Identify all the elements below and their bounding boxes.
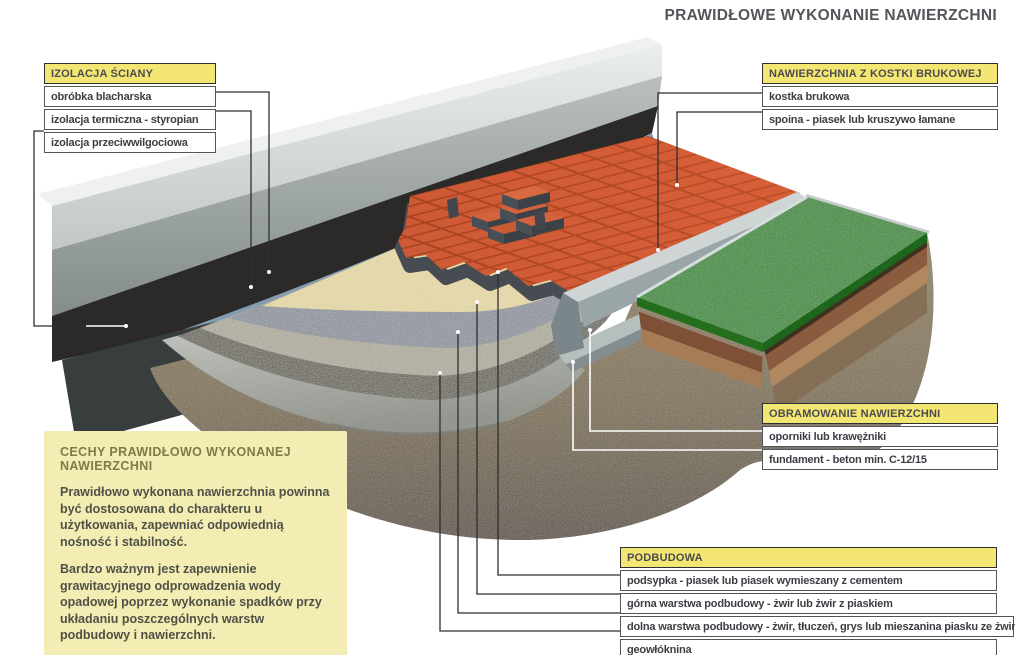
- info-box-header: CECHY PRAWIDŁOWO WYKONANEJ NAWIERZCHNI: [60, 445, 331, 473]
- callout-row: izolacja termiczna - styropian: [44, 109, 216, 130]
- callout-nawierzchnia: NAWIERZCHNIA Z KOSTKI BRUKOWEJ kostka br…: [762, 63, 998, 130]
- callout-header: OBRAMOWANIE NAWIERZCHNI: [762, 403, 998, 424]
- info-box-paragraph: Bardzo ważnym jest zapewnienie grawitacy…: [60, 561, 331, 644]
- callout-podbudowa: PODBUDOWA podsypka - piasek lub piasek w…: [620, 547, 997, 655]
- callout-row: fundament - beton min. C-12/15: [762, 449, 998, 470]
- callout-row: kostka brukowa: [762, 86, 998, 107]
- callout-row: izolacja przeciwwilgociowa: [44, 132, 216, 153]
- callout-header: PODBUDOWA: [620, 547, 997, 568]
- callout-header: IZOLACJA ŚCIANY: [44, 63, 216, 84]
- callout-row: spoina - piasek lub kruszywo łamane: [762, 109, 998, 130]
- callout-row: obróbka blacharska: [44, 86, 216, 107]
- info-box-paragraph: Prawidłowo wykonana nawierzchnia powinna…: [60, 484, 331, 550]
- callout-obramowanie: OBRAMOWANIE NAWIERZCHNI oporniki lub kra…: [762, 403, 998, 470]
- info-box: CECHY PRAWIDŁOWO WYKONANEJ NAWIERZCHNI P…: [44, 431, 347, 655]
- callout-izolacja-sciany: IZOLACJA ŚCIANY obróbka blacharska izola…: [44, 63, 216, 153]
- callout-row: geowłóknina: [620, 639, 997, 655]
- diagram-stage: PRAWIDŁOWE WYKONANIE NAWIERZCHNI IZOLACJ…: [0, 0, 1015, 655]
- page-title: PRAWIDŁOWE WYKONANIE NAWIERZCHNI: [664, 7, 997, 25]
- callout-row: podsypka - piasek lub piasek wymieszany …: [620, 570, 997, 591]
- callout-header: NAWIERZCHNIA Z KOSTKI BRUKOWEJ: [762, 63, 998, 84]
- callout-row: dolna warstwa podbudowy - żwir, tłuczeń,…: [620, 616, 1014, 637]
- callout-row: górna warstwa podbudowy - żwir lub żwir …: [620, 593, 997, 614]
- callout-row: oporniki lub krawężniki: [762, 426, 998, 447]
